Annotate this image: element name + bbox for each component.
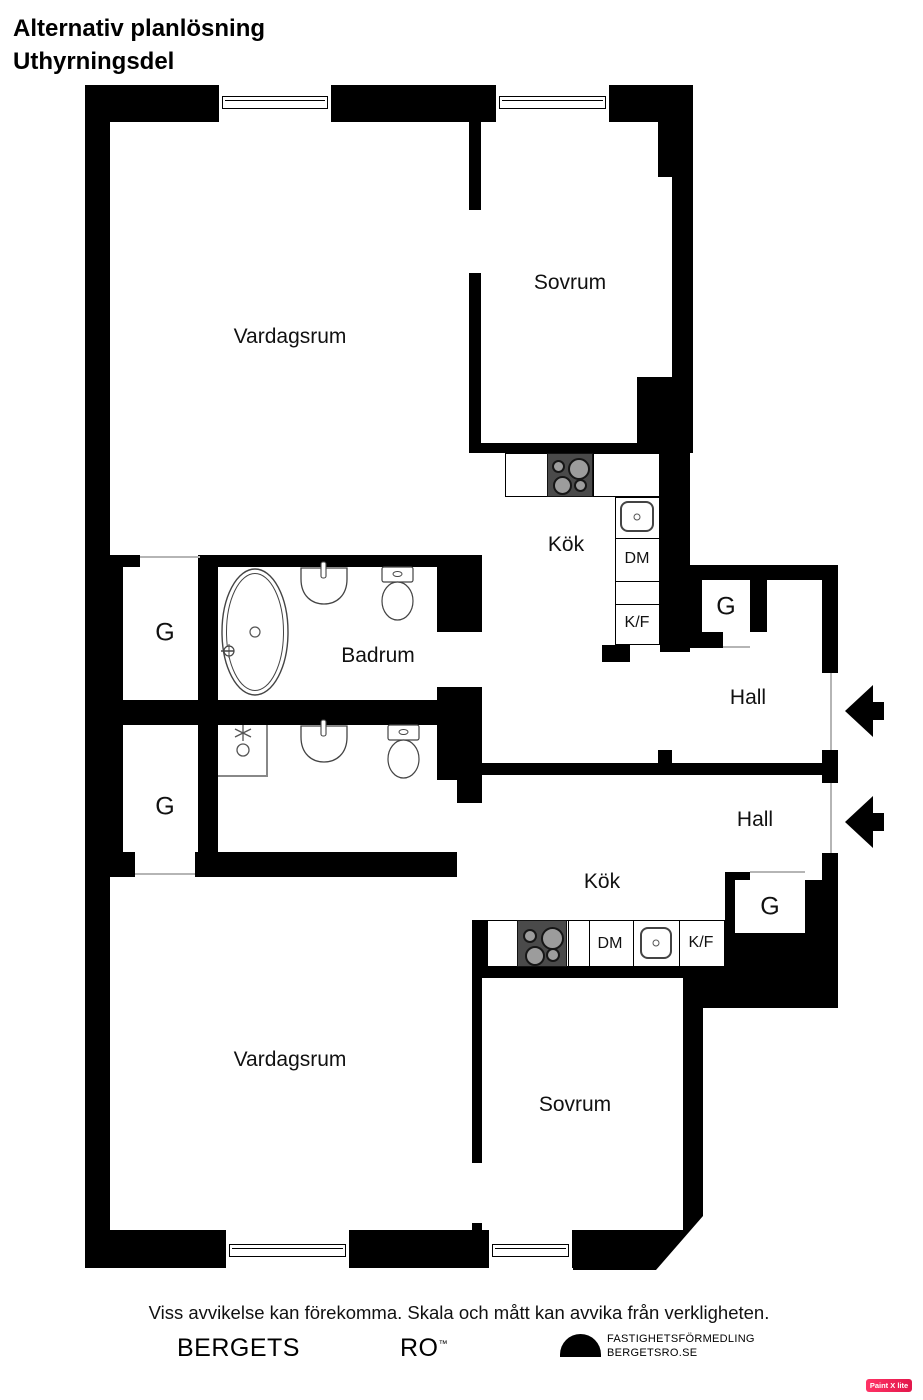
bathtub-icon xyxy=(219,566,291,698)
wall xyxy=(332,85,495,122)
disclaimer-text: Viss avvikelse kan förekomma. Skala och … xyxy=(149,1302,770,1324)
wall xyxy=(688,565,838,580)
room-label-hall-upper: Hall xyxy=(730,686,766,710)
cabinet-divider xyxy=(616,538,659,539)
room-label-kok-lower: Kök xyxy=(584,870,620,894)
wall xyxy=(469,122,481,210)
wall xyxy=(198,555,218,700)
closet-label-g3: G xyxy=(716,593,735,622)
kitchen-sink-icon xyxy=(640,927,672,959)
room-label-badrum: Badrum xyxy=(341,644,415,668)
window-frame xyxy=(499,96,606,109)
burner xyxy=(552,460,565,473)
window-frame-line xyxy=(495,1248,566,1249)
wall xyxy=(457,687,482,803)
wall xyxy=(472,1223,482,1230)
counter-divider xyxy=(633,921,634,966)
window-frame-line xyxy=(225,100,325,101)
window-frame xyxy=(492,1244,569,1257)
wall xyxy=(658,750,672,763)
wall xyxy=(683,967,723,1008)
sink-drain xyxy=(634,513,641,520)
wall xyxy=(672,177,693,377)
title-line1: Alternativ planlösning xyxy=(13,12,265,45)
logo-text: FASTIGHETSFÖRMEDLING BERGETSRO.SE xyxy=(607,1333,755,1360)
wall xyxy=(472,978,482,1163)
logo-line1: FASTIGHETSFÖRMEDLING xyxy=(607,1333,755,1347)
wall xyxy=(637,377,693,445)
appliance-label-dm-upper: DM xyxy=(625,550,650,568)
window xyxy=(488,1230,573,1268)
window-edge xyxy=(349,1230,350,1268)
room-label-sovrum-lower: Sovrum xyxy=(539,1093,611,1117)
closet-label-g2: G xyxy=(155,793,174,822)
entrance-door-line xyxy=(830,673,832,750)
wall xyxy=(688,580,702,648)
room-label-vardagsrum-lower: Vardagsrum xyxy=(234,1048,347,1072)
wall xyxy=(602,645,630,662)
appliance-label-dm-lower: DM xyxy=(598,935,623,953)
wall xyxy=(658,122,693,177)
floor-plan-page: Alternativ planlösning Uthyrningsdel xyxy=(0,0,923,1400)
cabinet-divider xyxy=(616,581,659,582)
wall xyxy=(725,872,750,880)
brand-ro: RO™ xyxy=(400,1336,448,1361)
window-frame-line xyxy=(502,100,603,101)
logo-line2: BERGETSRO.SE xyxy=(607,1347,755,1361)
appliance-label-kf-upper: K/F xyxy=(625,614,650,632)
window-edge xyxy=(218,85,219,122)
title-line2: Uthyrningsdel xyxy=(13,45,265,78)
window-edge xyxy=(609,85,610,122)
trademark-symbol: ™ xyxy=(439,1339,448,1349)
stove-icon xyxy=(547,453,593,497)
burner xyxy=(525,946,545,966)
window-edge xyxy=(225,1230,226,1268)
door-opening-line xyxy=(140,556,200,558)
wall xyxy=(723,933,838,1008)
room-label-hall-lower: Hall xyxy=(737,808,773,832)
wall xyxy=(725,872,735,933)
room-label-kok-upper: Kök xyxy=(548,533,584,557)
window-edge xyxy=(495,85,496,122)
counter-divider xyxy=(679,921,680,966)
wall xyxy=(805,913,838,933)
window xyxy=(225,1230,350,1268)
window-edge xyxy=(488,1230,489,1268)
toilet-icon xyxy=(386,724,422,780)
window xyxy=(495,85,610,122)
kitchen-sink-icon xyxy=(620,501,654,532)
wall xyxy=(350,1230,488,1268)
sink-drain xyxy=(653,940,660,947)
burner xyxy=(553,476,572,495)
logo-dome-icon xyxy=(560,1334,601,1357)
entrance-arrow-icon xyxy=(845,796,885,848)
wall xyxy=(750,580,767,632)
wall xyxy=(440,725,457,780)
sink-icon xyxy=(300,562,348,606)
window-frame xyxy=(222,96,328,109)
counter-divider xyxy=(568,921,569,966)
wall xyxy=(458,763,838,775)
wall xyxy=(610,85,693,122)
wall xyxy=(660,445,690,652)
entrance-door-line xyxy=(830,783,832,853)
burner xyxy=(546,948,560,962)
closet-label-g4: G xyxy=(760,893,779,922)
shower-wall-line xyxy=(218,775,268,777)
wall xyxy=(702,632,723,648)
counter-divider xyxy=(593,454,594,496)
wall xyxy=(85,700,457,725)
window-edge xyxy=(331,85,332,122)
sink-icon xyxy=(300,720,348,764)
closet-label-g1: G xyxy=(155,619,174,648)
brand-ro-text: RO xyxy=(400,1334,439,1362)
appliance-label-kf-lower: K/F xyxy=(689,934,714,952)
door-opening-line xyxy=(135,873,195,875)
window xyxy=(218,85,332,122)
stove-icon xyxy=(517,920,567,967)
page-title: Alternativ planlösning Uthyrningsdel xyxy=(13,12,265,78)
window-frame-line xyxy=(232,1248,343,1249)
wall xyxy=(683,1008,703,1212)
door-opening-line xyxy=(750,871,805,873)
burner xyxy=(574,479,587,492)
entrance-arrow-icon xyxy=(845,685,885,737)
wall xyxy=(195,852,457,877)
wall xyxy=(472,967,683,978)
toilet-icon xyxy=(380,566,416,622)
wall xyxy=(822,580,838,673)
shower-wall-line xyxy=(266,725,268,777)
wall xyxy=(472,920,487,967)
wall-diagonal-corner xyxy=(573,1208,703,1270)
burner xyxy=(568,458,590,480)
window-edge xyxy=(572,1230,573,1268)
room-label-sovrum-upper: Sovrum xyxy=(534,271,606,295)
burner xyxy=(541,927,564,950)
wall xyxy=(805,880,823,913)
wall xyxy=(85,1230,225,1268)
burner xyxy=(523,929,537,943)
wall xyxy=(85,85,110,1268)
wall xyxy=(85,852,135,877)
shower-icon xyxy=(230,724,256,758)
wall xyxy=(437,555,482,632)
cabinet-divider xyxy=(616,604,659,605)
window-frame xyxy=(229,1244,346,1257)
wall xyxy=(469,273,481,443)
watermark-badge: Paint X lite xyxy=(866,1379,912,1392)
counter-divider xyxy=(589,921,590,966)
room-label-vardagsrum-upper: Vardagsrum xyxy=(234,325,347,349)
brand-bergets: BERGETS xyxy=(177,1336,300,1361)
door-opening-line xyxy=(723,646,750,648)
